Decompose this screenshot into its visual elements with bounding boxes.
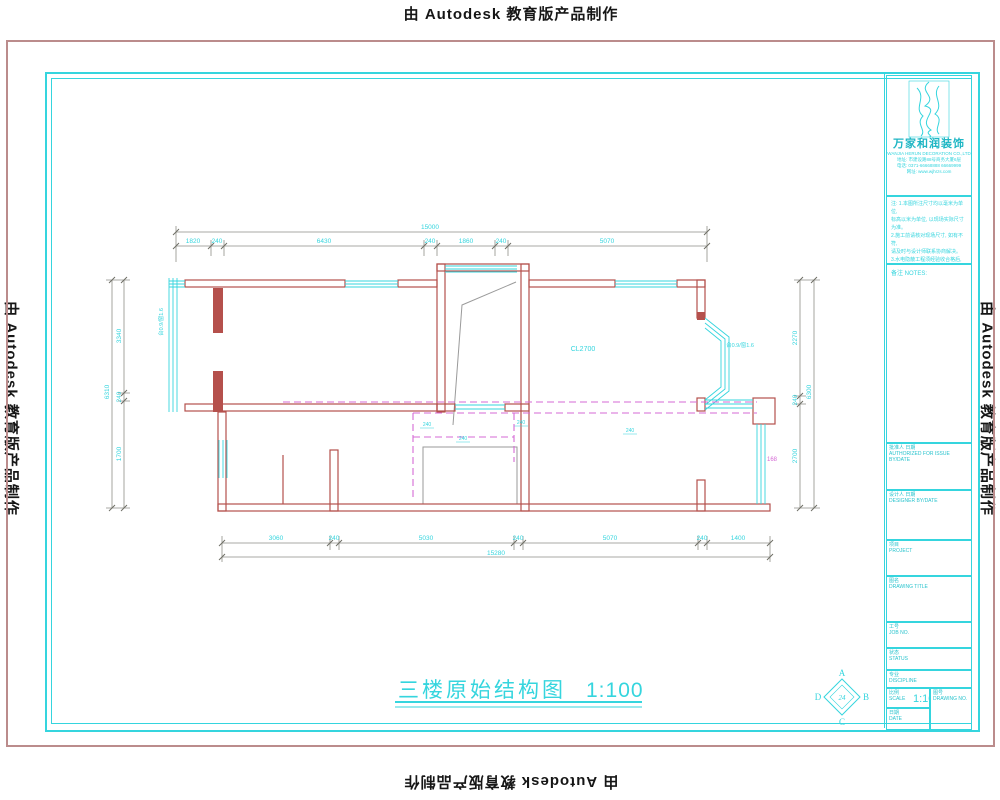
- compass-c: C: [839, 717, 845, 727]
- field-label-cn: 图号: [931, 689, 971, 696]
- dim-overall-top: 15000: [421, 224, 439, 231]
- orientation-symbol: A B C D 24: [815, 668, 869, 727]
- compass-d: D: [815, 692, 822, 702]
- dim-label: 5070: [600, 238, 615, 245]
- plan-annotations: CL2700 台0.9/窗1.6 台0.9/窗1.6 240 240 240 2…: [157, 308, 778, 463]
- window-tag-right: 台0.9/窗1.6: [726, 341, 754, 349]
- titleblock-notes-paragraph: 注: 1.本图所注尺寸均以毫米为单位, 标高以米为单位, 以现场实际尺寸为准。 …: [886, 196, 972, 264]
- field-label-en: DISCIPLINE: [887, 678, 971, 684]
- titleblock-notes-box: 备注 NOTES:: [886, 264, 972, 443]
- titleblock-designer: 设计人 日期 DESIGNER BY/DATE: [886, 490, 972, 540]
- walls: [185, 264, 775, 511]
- dim-label: 5070: [603, 535, 618, 542]
- dim-label: 6430: [317, 238, 332, 245]
- titleblock-logo-box: 万家和润装饰 WANJIA HERUN DECORATION CO.,LTD 地…: [886, 75, 972, 196]
- field-label-cn: 状态: [887, 649, 971, 656]
- compass-a: A: [839, 668, 846, 678]
- titleblock-scale: 比例 SCALE 1:100: [886, 688, 930, 708]
- note-line: 请及时与设计师联系协商解决。: [891, 248, 967, 256]
- dim-label: 240: [116, 391, 123, 402]
- dim-label: 5030: [419, 535, 434, 542]
- field-label-cn: 批准人 日期: [887, 444, 971, 451]
- field-label-cn: 日期: [887, 709, 929, 716]
- plan-title: 三楼原始结构图1:100: [398, 674, 644, 704]
- note-line: 3.水电隐蔽工程须经验收合格后,: [891, 256, 967, 264]
- compass-center: 24: [839, 694, 847, 702]
- field-label-en: STATUS: [887, 656, 971, 662]
- ceiling-height-label: CL2700: [571, 346, 596, 353]
- company-logo: [907, 80, 951, 138]
- titleblock-job-no: 工号 JOB NO.: [886, 622, 972, 648]
- dim-overall-bottom: 15280: [487, 550, 505, 557]
- beam-mark: 240: [423, 422, 432, 428]
- titleblock-drawing-no: 图号 DRAWING NO.: [930, 688, 972, 730]
- windows: [169, 266, 765, 504]
- note-line: 注: 1.本图所注尺寸均以毫米为单位,: [891, 200, 967, 216]
- dim-label: 3060: [269, 535, 284, 542]
- titleblock-project: 项目 PROJECT: [886, 540, 972, 576]
- field-label-cn: 项目: [887, 541, 971, 548]
- dim-label: 1700: [116, 446, 123, 461]
- dim-label: 240: [496, 238, 507, 245]
- dim-label: 3340: [116, 328, 123, 343]
- compass-b: B: [863, 692, 869, 702]
- notes-title: 备注 NOTES:: [887, 265, 971, 280]
- dim-label: 240: [329, 535, 340, 542]
- beam-dashed-lines: [283, 402, 757, 501]
- window-tag-left: 台0.9/窗1.6: [157, 308, 165, 336]
- field-label-en: DRAWING TITLE: [887, 584, 971, 590]
- dim-label: 240: [212, 238, 223, 245]
- dim-label: 240: [425, 238, 436, 245]
- dim-label: 1860: [459, 238, 474, 245]
- titleblock-authorized: 批准人 日期 AUTHORIZED FOR ISSUE BY/DATE: [886, 443, 972, 490]
- plan-title-scale: 1:100: [586, 679, 644, 702]
- plan-title-text: 三楼原始结构图: [398, 679, 566, 702]
- field-label-cn: 工号: [887, 623, 971, 630]
- beam-mark: 240: [626, 428, 635, 434]
- area-mark: 168: [767, 457, 778, 463]
- field-label-en: PROJECT: [887, 548, 971, 554]
- field-label-en: DRAWING NO.: [931, 696, 971, 702]
- note-line: 2.施工前请核对现场尺寸, 如有不符,: [891, 232, 967, 248]
- beam-mark: 240: [459, 436, 468, 442]
- titleblock-status: 状态 STATUS: [886, 648, 972, 670]
- scale-value: 1:100: [913, 693, 930, 705]
- field-label-cn: 图名: [887, 577, 971, 584]
- dim-label: 240: [697, 535, 708, 542]
- dim-overall-right: 6300: [806, 384, 813, 399]
- titleblock-drawing-title: 图名 DRAWING TITLE: [886, 576, 972, 622]
- field-label-en: DATE: [887, 716, 929, 722]
- beam-mark: 240: [517, 420, 526, 426]
- field-label-cn: 专业: [887, 671, 971, 678]
- note-line: 标高以米为单位, 以现场实际尺寸为准。: [891, 216, 967, 232]
- dim-label: 2270: [792, 330, 799, 345]
- dimension-labels: 15000 1820 240 6430 240 1860 240 5070 15…: [104, 224, 813, 557]
- dim-label: 1820: [186, 238, 201, 245]
- dim-label: 2700: [792, 448, 799, 463]
- field-label-en: JOB NO.: [887, 630, 971, 636]
- field-label-cn: 设计人 日期: [887, 491, 971, 498]
- titleblock-date: 日期 DATE: [886, 708, 930, 730]
- titleblock-discipline: 专业 DISCIPLINE: [886, 670, 972, 688]
- field-label-en: AUTHORIZED FOR ISSUE BY/DATE: [887, 451, 971, 463]
- field-label-en: DESIGNER BY/DATE: [887, 498, 971, 504]
- company-name: 万家和润装饰: [887, 138, 971, 151]
- dim-label: 240: [513, 535, 524, 542]
- dim-overall-left: 6310: [104, 384, 111, 399]
- company-address-line: 网址: www.wjhrzs.com: [887, 169, 971, 175]
- dim-label: 240: [792, 394, 799, 405]
- dim-label: 1400: [731, 535, 746, 542]
